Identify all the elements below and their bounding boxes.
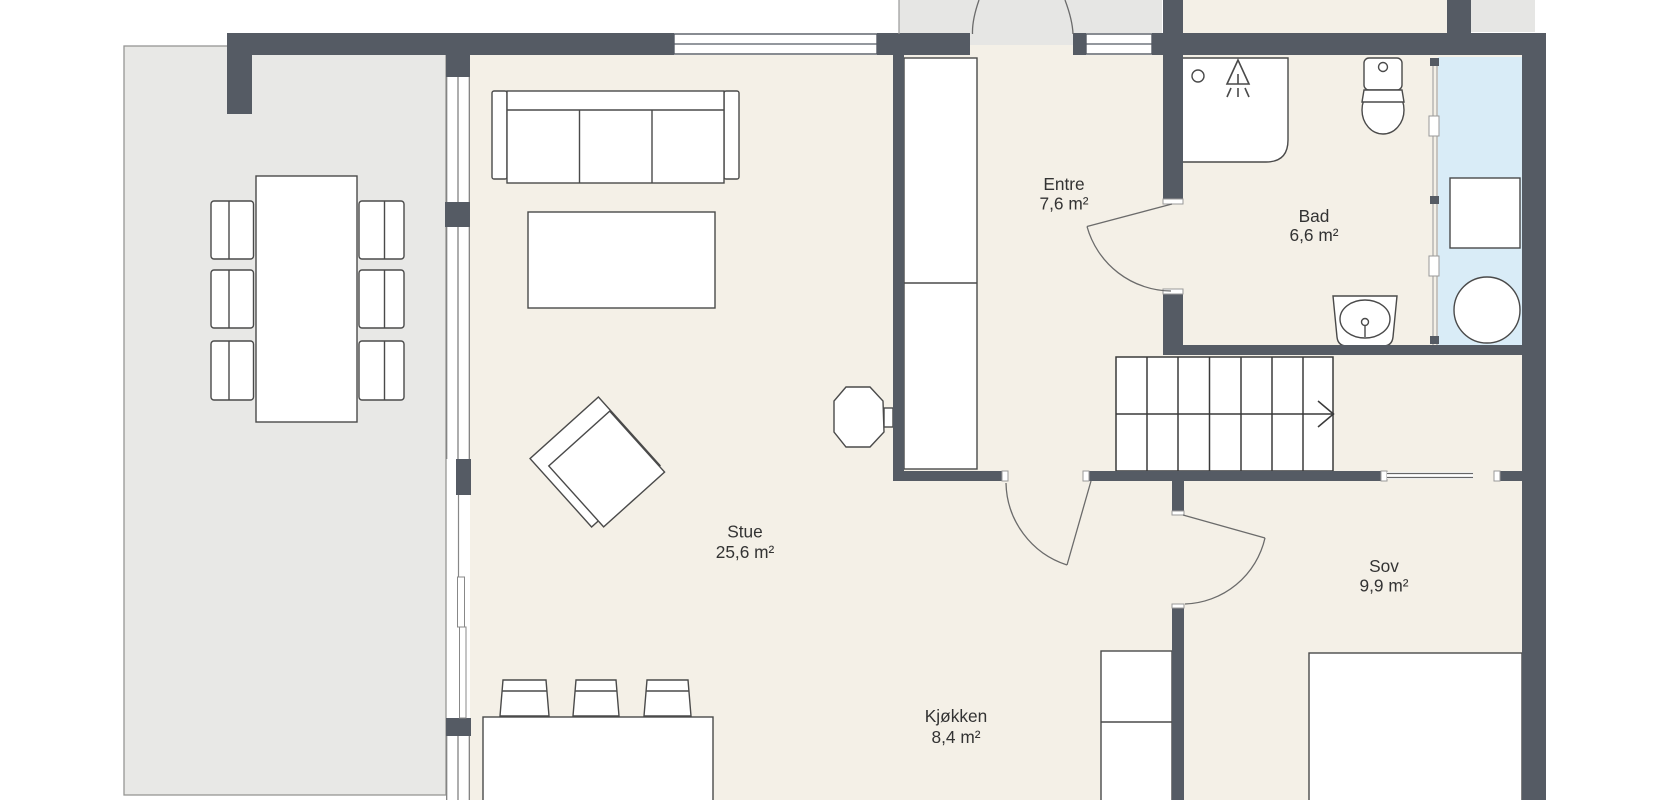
svg-text:9,9 m²: 9,9 m² — [1360, 576, 1409, 596]
svg-text:6,6 m²: 6,6 m² — [1290, 225, 1339, 245]
svg-text:Stue: Stue — [727, 522, 763, 542]
svg-text:8,4 m²: 8,4 m² — [932, 727, 981, 747]
svg-text:Kjøkken: Kjøkken — [925, 706, 987, 726]
svg-text:Sov: Sov — [1369, 556, 1399, 576]
svg-text:Bad: Bad — [1299, 206, 1330, 226]
svg-text:7,6 m²: 7,6 m² — [1040, 194, 1089, 214]
svg-text:25,6 m²: 25,6 m² — [716, 542, 775, 562]
svg-text:Entre: Entre — [1043, 174, 1084, 194]
